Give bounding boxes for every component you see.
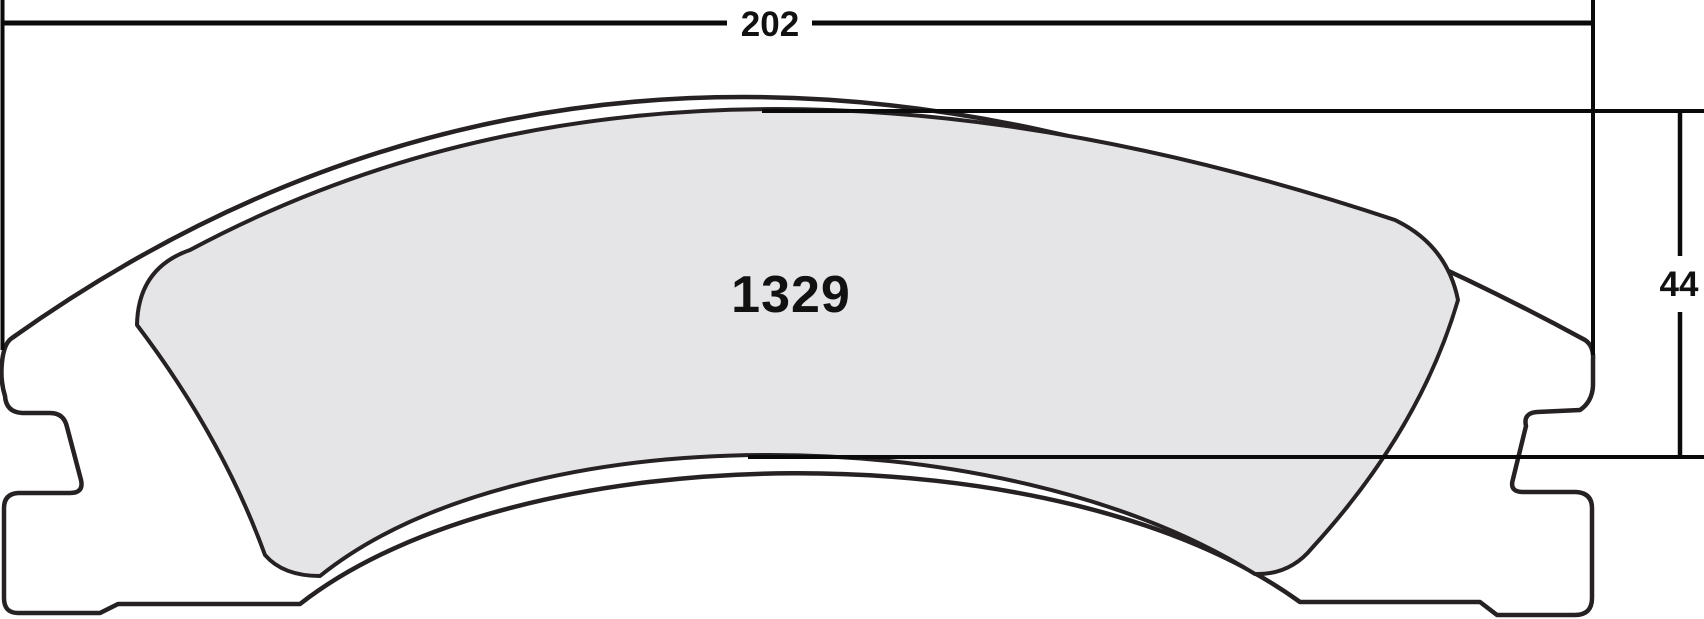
height-dimension-label: 44 [1660,265,1699,304]
drawing-canvas: 202 44 1329 [0,0,1704,619]
brake-pad-drawing: 202 44 1329 [0,0,1704,619]
width-dimension-label: 202 [741,5,799,44]
part-number-label: 1329 [731,266,851,324]
